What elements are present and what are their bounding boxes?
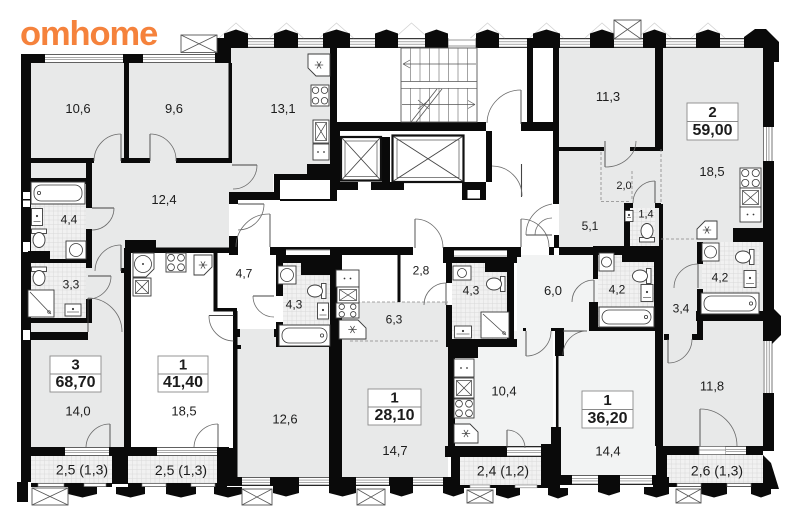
svg-text:10,6: 10,6 [65, 101, 90, 116]
svg-text:3: 3 [71, 357, 79, 374]
svg-text:4,4: 4,4 [61, 213, 78, 227]
svg-text:1: 1 [179, 357, 187, 374]
svg-text:18,5: 18,5 [699, 164, 724, 179]
svg-text:2,4 (1,2): 2,4 (1,2) [477, 463, 529, 479]
svg-text:14,4: 14,4 [595, 444, 620, 459]
svg-text:1: 1 [603, 392, 611, 409]
svg-text:3,4: 3,4 [673, 302, 690, 316]
svg-text:18,5: 18,5 [171, 404, 196, 419]
svg-text:4,7: 4,7 [236, 267, 253, 281]
svg-text:2,8: 2,8 [413, 264, 430, 278]
svg-text:10,4: 10,4 [491, 384, 516, 399]
svg-text:5,1: 5,1 [582, 219, 599, 233]
svg-text:2,6 (1,3): 2,6 (1,3) [691, 463, 743, 479]
svg-text:2,5 (1,3): 2,5 (1,3) [56, 462, 108, 478]
svg-text:4,3: 4,3 [463, 284, 480, 298]
svg-text:68,70: 68,70 [55, 374, 95, 391]
svg-text:4,2: 4,2 [609, 283, 626, 297]
svg-text:1,4: 1,4 [638, 209, 653, 221]
svg-text:2: 2 [708, 104, 716, 121]
svg-text:1: 1 [390, 390, 398, 407]
svg-text:3,3: 3,3 [63, 278, 80, 292]
svg-text:41,40: 41,40 [163, 374, 203, 391]
svg-text:11,3: 11,3 [596, 89, 620, 104]
svg-text:14,0: 14,0 [65, 404, 90, 419]
svg-text:4,2: 4,2 [712, 271, 729, 285]
svg-text:9,6: 9,6 [165, 101, 183, 116]
svg-text:2,0: 2,0 [616, 180, 631, 192]
svg-text:6,3: 6,3 [386, 313, 403, 327]
svg-text:36,20: 36,20 [587, 410, 627, 427]
svg-text:14,7: 14,7 [382, 443, 407, 458]
svg-text:2,5 (1,3): 2,5 (1,3) [155, 462, 207, 478]
svg-text:12,4: 12,4 [151, 192, 176, 207]
svg-text:11,8: 11,8 [700, 379, 724, 394]
svg-text:omhome: omhome [20, 15, 158, 53]
svg-text:6,0: 6,0 [544, 283, 562, 298]
svg-text:12,6: 12,6 [272, 412, 297, 427]
svg-text:59,00: 59,00 [692, 122, 732, 139]
svg-text:28,10: 28,10 [374, 407, 414, 424]
svg-text:13,1: 13,1 [270, 101, 295, 116]
svg-text:4,3: 4,3 [286, 298, 303, 312]
